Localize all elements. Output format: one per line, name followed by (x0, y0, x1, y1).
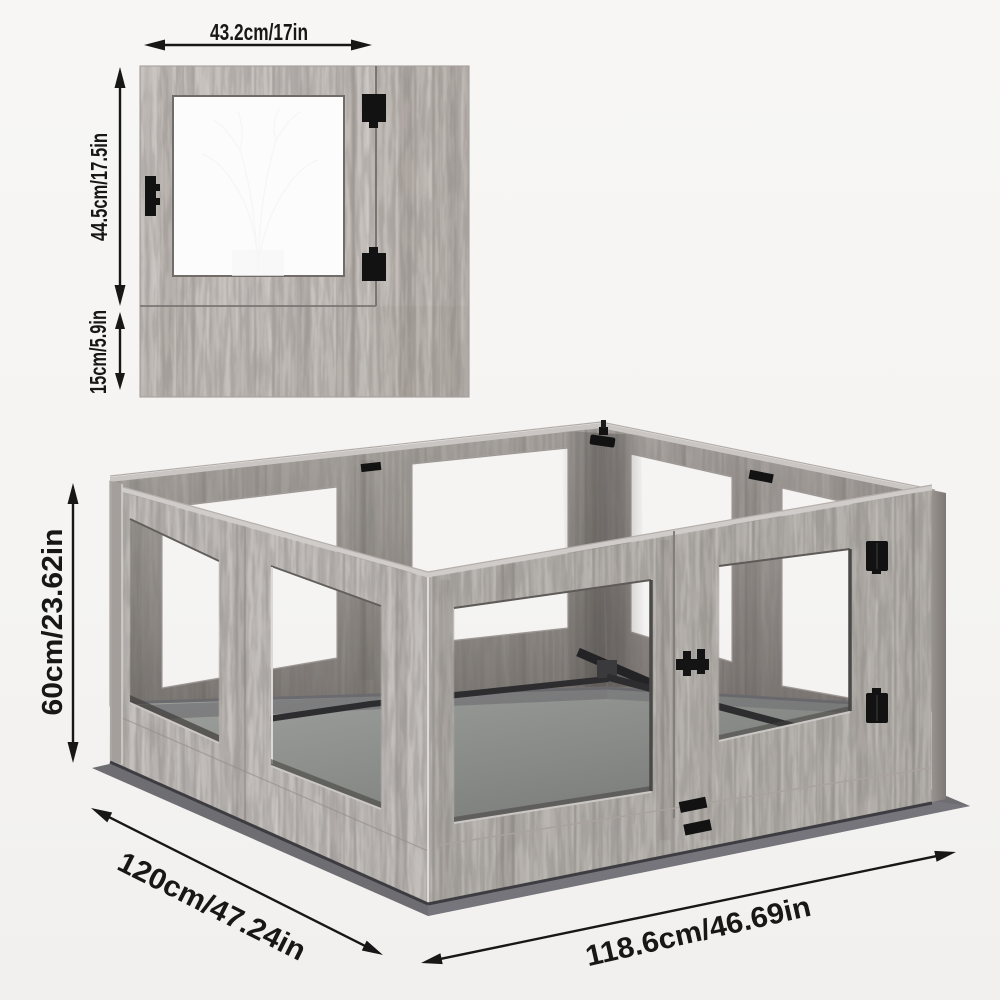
svg-text:43.2cm/17in: 43.2cm/17in (210, 19, 308, 45)
svg-text:44.5cm/17.5in: 44.5cm/17.5in (86, 133, 112, 241)
svg-text:60cm/23.62in: 60cm/23.62in (37, 529, 69, 716)
svg-text:15cm/5.9in: 15cm/5.9in (85, 310, 111, 394)
